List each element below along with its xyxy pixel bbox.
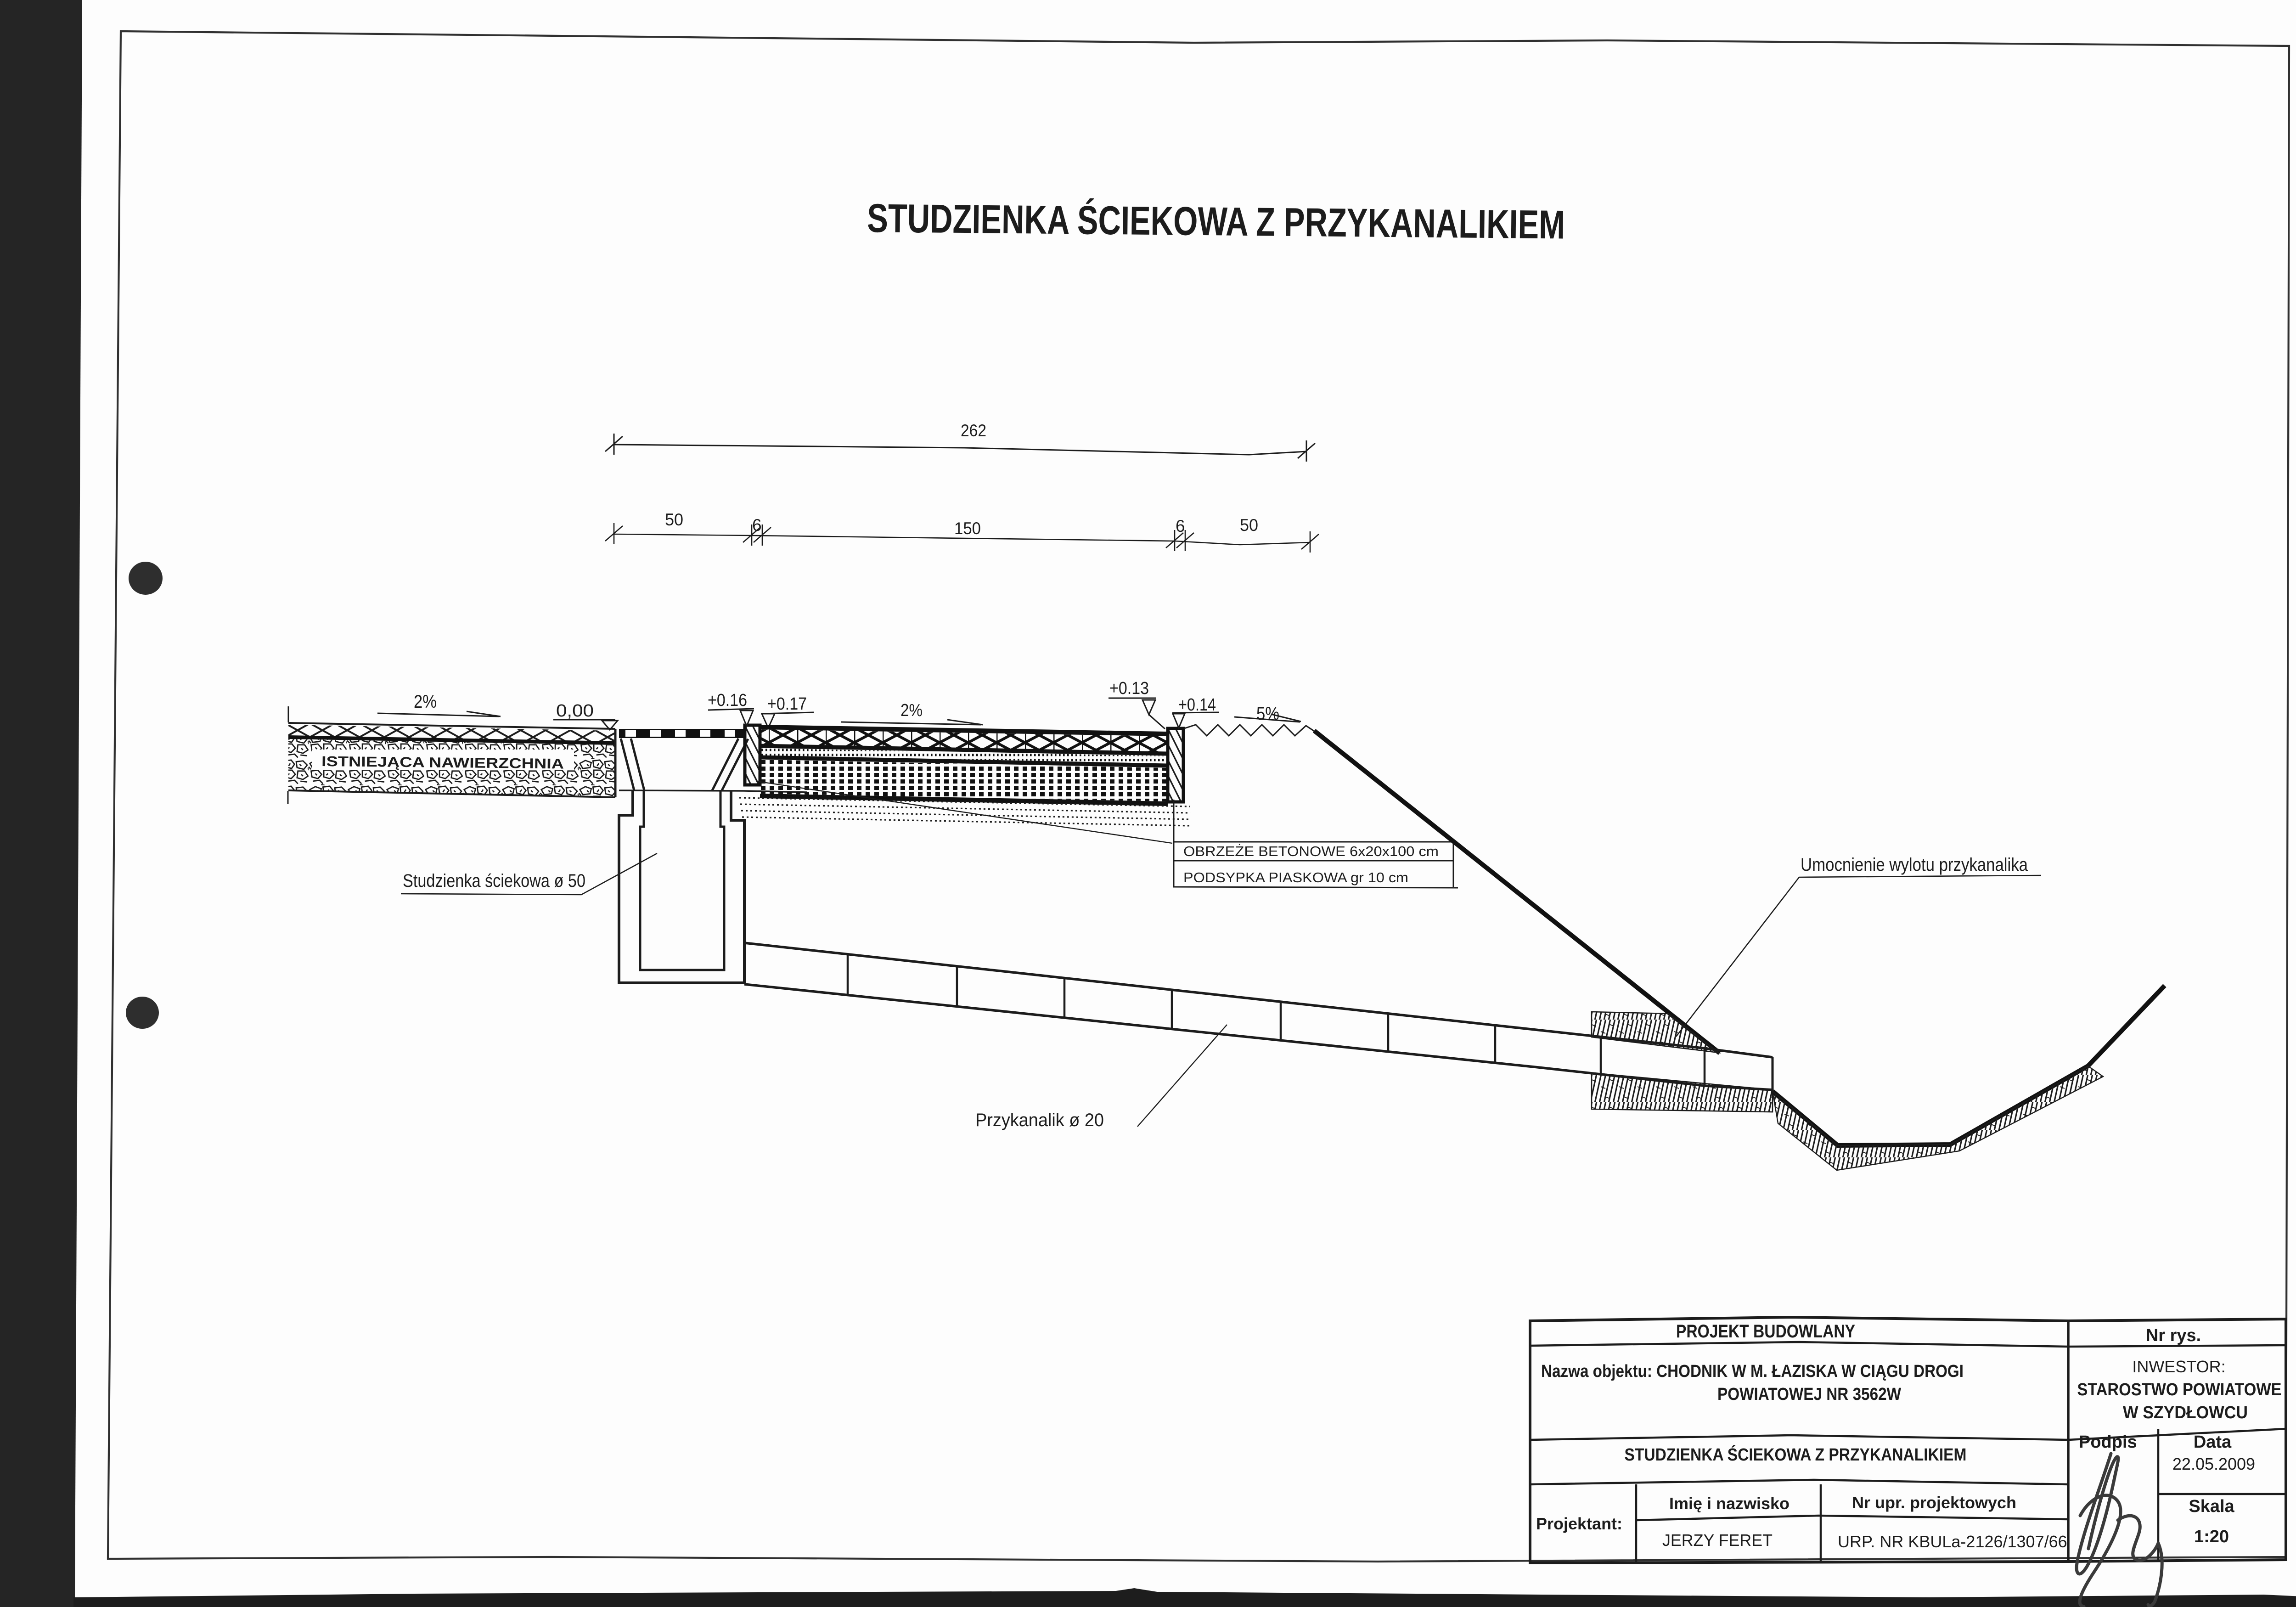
svg-text:Nazwa objektu: CHODNIK W M. ŁA: Nazwa objektu: CHODNIK W M. ŁAZISKA W CI… <box>1541 1362 1964 1381</box>
svg-text:22.05.2009: 22.05.2009 <box>2172 1455 2255 1473</box>
svg-text:+0.16: +0.16 <box>708 691 747 710</box>
svg-text:Nr rys.: Nr rys. <box>2146 1326 2201 1345</box>
svg-text:Umocnienie wylotu przykanali: Umocnienie wylotu przykanalika <box>1801 855 2028 875</box>
svg-text:JERZY FERET: JERZY FERET <box>1662 1531 1773 1550</box>
svg-text:1:20: 1:20 <box>2194 1527 2229 1546</box>
svg-text:PODSYPKA PIASKOWA gr 10 cm: PODSYPKA PIASKOWA gr 10 cm <box>1183 869 1408 885</box>
svg-text:6: 6 <box>1176 517 1185 536</box>
svg-text:Imię i nazwisko: Imię i nazwisko <box>1669 1494 1790 1513</box>
svg-text:262: 262 <box>961 421 986 440</box>
svg-text:0,00: 0,00 <box>556 701 594 721</box>
svg-text:URP. NR KBULa-2126/1307/66: URP. NR KBULa-2126/1307/66 <box>1838 1532 2067 1551</box>
svg-text:POWIATOWEJ NR 3562W: POWIATOWEJ NR 3562W <box>1717 1385 1901 1404</box>
svg-text:Przykanalik ø 20: Przykanalik ø 20 <box>975 1110 1104 1130</box>
svg-text:2%: 2% <box>414 692 437 712</box>
svg-text:2%: 2% <box>900 701 923 720</box>
svg-text:+0.17: +0.17 <box>767 694 807 714</box>
svg-text:6: 6 <box>752 516 762 535</box>
svg-text:50: 50 <box>1240 516 1258 535</box>
svg-text:Skala: Skala <box>2189 1497 2234 1516</box>
svg-text:50: 50 <box>665 510 683 529</box>
svg-text:STUDZIENKA ŚCIEKOWA Z PRZYKANA: STUDZIENKA ŚCIEKOWA Z PRZYKANALIKIEM <box>867 195 1565 248</box>
svg-text:ISTNIEJĄCA NAWIERZCHNIA: ISTNIEJĄCA NAWIERZCHNIA <box>321 753 564 772</box>
svg-text:Podpis: Podpis <box>2079 1432 2137 1452</box>
svg-text:STUDZIENKA ŚCIEKOWA Z PRZYK: STUDZIENKA ŚCIEKOWA Z PRZYKANALIKIEM <box>1625 1444 1967 1465</box>
svg-text:Studzienka ściekowa ø 50: Studzienka ściekowa ø 50 <box>403 871 585 891</box>
svg-text:Projektant:: Projektant: <box>1536 1514 1622 1533</box>
svg-text:STAROSTWO POWIATOWE: STAROSTWO POWIATOWE <box>2077 1380 2282 1399</box>
svg-text:PROJEKT BUDOWLANY: PROJEKT BUDOWLANY <box>1676 1321 1855 1342</box>
svg-text:Nr upr. projektowych: Nr upr. projektowych <box>1852 1493 2016 1512</box>
svg-text:INWESTOR:: INWESTOR: <box>2132 1357 2225 1376</box>
svg-text:+0.13: +0.13 <box>1109 679 1149 698</box>
svg-text:150: 150 <box>954 519 981 538</box>
svg-text:Data: Data <box>2194 1432 2232 1452</box>
svg-text:W SZYDŁOWCU: W SZYDŁOWCU <box>2123 1403 2248 1422</box>
svg-text:OBRZEŻE BETONOWE 6x20x100 cm: OBRZEŻE BETONOWE 6x20x100 cm <box>1183 843 1439 859</box>
